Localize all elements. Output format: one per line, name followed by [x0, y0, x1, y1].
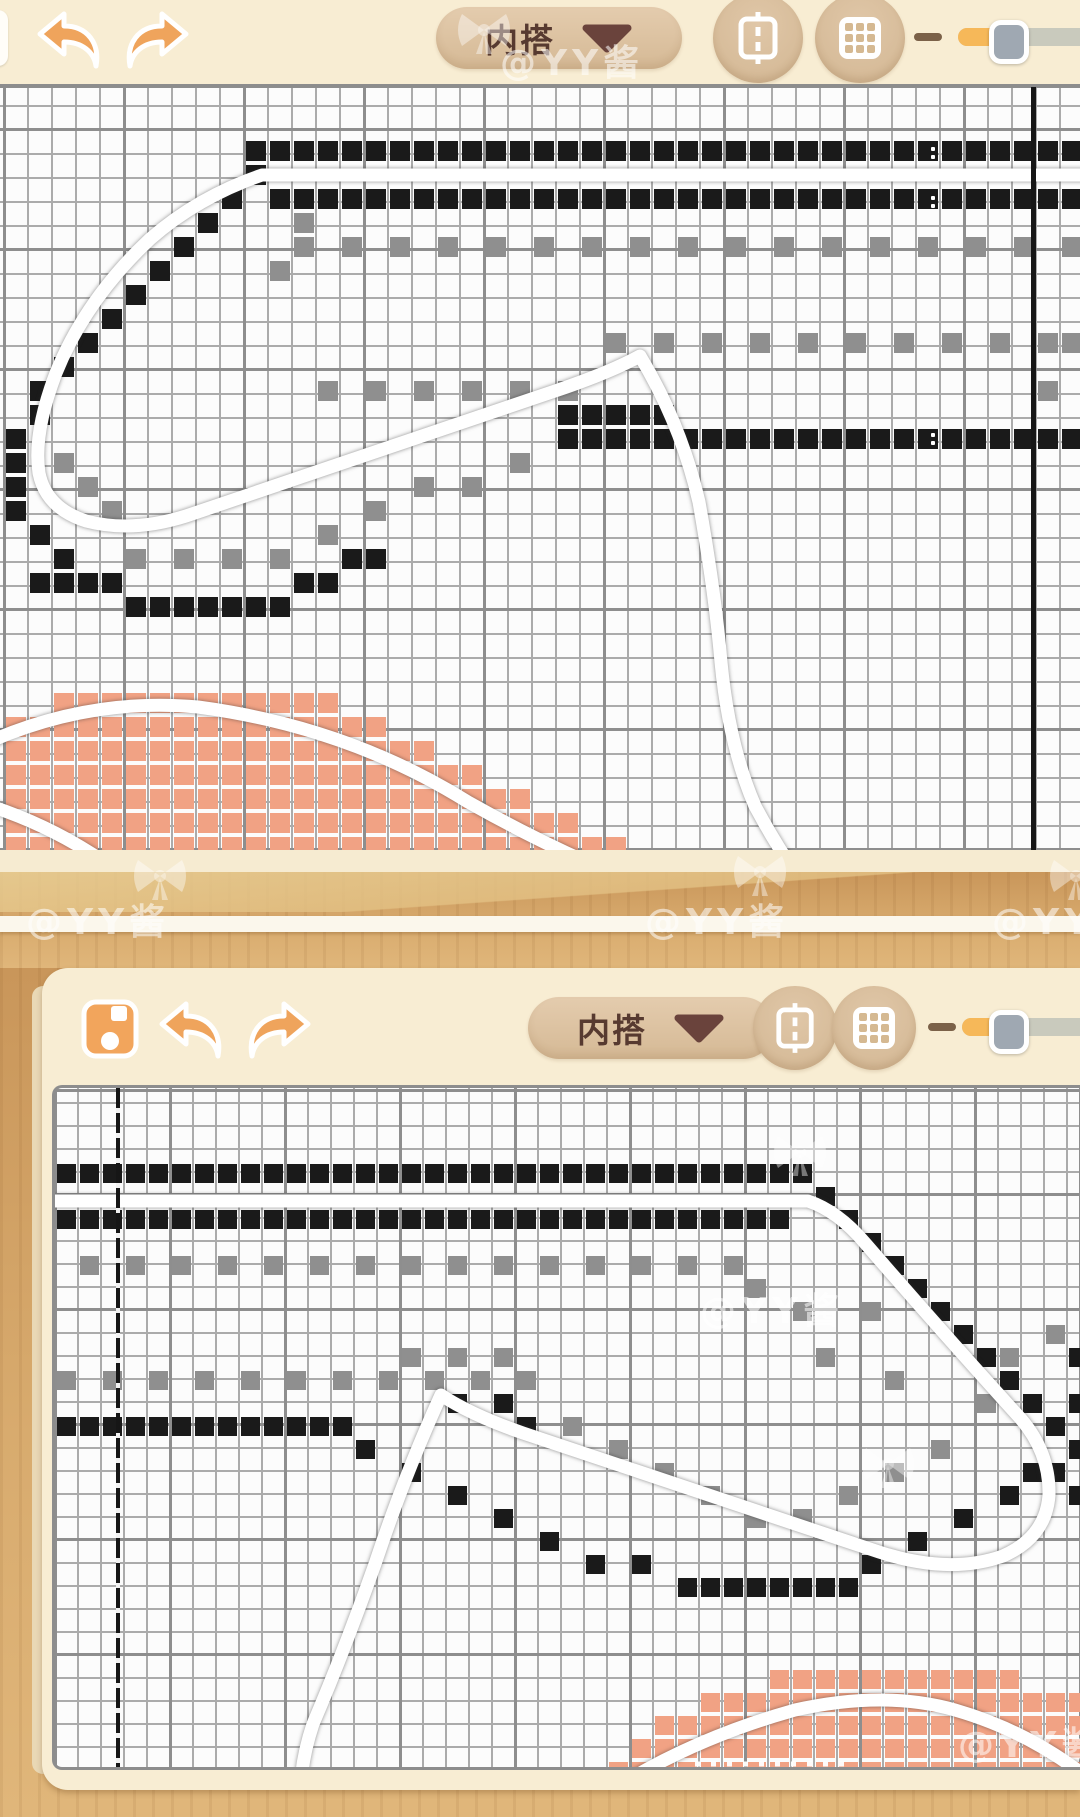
pattern-cell	[198, 717, 218, 737]
pattern-cell	[563, 1210, 582, 1229]
pattern-cell	[558, 141, 578, 161]
pattern-cell	[822, 141, 842, 161]
pattern-cell	[558, 429, 578, 449]
pattern-cell	[931, 1693, 950, 1712]
pattern-cell	[270, 261, 290, 281]
pattern-cell	[402, 1348, 421, 1367]
pattern-cell	[747, 1716, 766, 1735]
chevron-down-icon	[581, 23, 633, 53]
pattern-cell	[126, 741, 146, 761]
pattern-cell	[582, 429, 602, 449]
pattern-cell	[966, 237, 986, 257]
pattern-cell	[540, 1164, 559, 1183]
pattern-cell	[402, 1164, 421, 1183]
pattern-cell	[534, 813, 554, 833]
pattern-cell	[654, 333, 674, 353]
pattern-cell	[80, 1256, 99, 1275]
pattern-cell	[798, 189, 818, 209]
pattern-cell	[839, 1670, 858, 1689]
pattern-cell	[1062, 429, 1080, 449]
mirror-button[interactable]	[753, 986, 837, 1070]
pattern-cell	[846, 333, 866, 353]
pattern-cell	[726, 237, 746, 257]
pattern-cell	[150, 765, 170, 785]
pattern-cell	[150, 741, 170, 761]
pattern-cell	[793, 1739, 812, 1758]
pattern-cell	[198, 213, 218, 233]
pattern-cell	[540, 1210, 559, 1229]
pattern-cell	[222, 717, 242, 737]
save-icon	[80, 998, 140, 1060]
pattern-cell	[150, 789, 170, 809]
pattern-cell	[78, 693, 98, 713]
pattern-cell	[1046, 1739, 1065, 1758]
pattern-cell	[287, 1164, 306, 1183]
pattern-cell	[977, 1670, 996, 1689]
pattern-cell	[908, 1762, 927, 1770]
pattern-cell	[966, 141, 986, 161]
pattern-cell	[149, 1164, 168, 1183]
panel2-toolbar: 内搭	[42, 990, 1080, 1074]
pattern-cell	[701, 1164, 720, 1183]
pattern-cell	[990, 333, 1010, 353]
pattern-cell	[80, 1417, 99, 1436]
pattern-cell	[342, 741, 362, 761]
pattern-cell	[287, 1417, 306, 1436]
pattern-cell	[862, 1555, 881, 1574]
pattern-cell	[1046, 1693, 1065, 1712]
pattern-cell	[438, 813, 458, 833]
pattern-cell	[1069, 1440, 1080, 1459]
pattern-cell	[471, 1371, 490, 1390]
pattern-cell	[448, 1256, 467, 1275]
pattern-cell	[318, 741, 338, 761]
pattern-cell	[264, 1256, 283, 1275]
pattern-cell	[294, 765, 314, 785]
pattern-cell	[195, 1371, 214, 1390]
pattern-cell	[318, 693, 338, 713]
pattern-cell	[1062, 333, 1080, 353]
pattern-cell	[954, 1325, 973, 1344]
pattern-cell	[1000, 1348, 1019, 1367]
wood-divider-highlight	[0, 872, 1080, 912]
pattern-cell	[80, 1210, 99, 1229]
pattern-cell	[264, 1417, 283, 1436]
pattern-cell	[264, 1210, 283, 1229]
pattern-cell	[747, 1164, 766, 1183]
pattern-cell	[462, 765, 482, 785]
pattern-cell	[414, 381, 434, 401]
pattern-cell	[726, 189, 746, 209]
zoom-out-icon[interactable]	[928, 1023, 956, 1031]
pattern-cell	[30, 405, 50, 425]
grid-icon	[839, 17, 881, 59]
pattern-cell	[6, 717, 26, 737]
pattern-cell	[54, 741, 74, 761]
pattern-cell	[402, 1463, 421, 1482]
pattern-cell	[218, 1256, 237, 1275]
pattern-cell	[1046, 1716, 1065, 1735]
pattern-cell	[558, 813, 578, 833]
pattern-cell	[294, 237, 314, 257]
layer-selector[interactable]: 内搭	[436, 7, 682, 69]
pattern-cell	[149, 1417, 168, 1436]
pattern-cell	[366, 717, 386, 737]
pattern-cell	[310, 1164, 329, 1183]
pattern-cell	[954, 1716, 973, 1735]
pattern-cell	[102, 765, 122, 785]
pattern-cell	[366, 189, 386, 209]
pattern-cell	[462, 477, 482, 497]
pattern-cell	[379, 1371, 398, 1390]
pattern-cell	[630, 237, 650, 257]
pattern-cell	[270, 765, 290, 785]
undo-icon	[30, 8, 114, 72]
pattern-cell	[294, 141, 314, 161]
pattern-cell	[246, 765, 266, 785]
pattern-cell	[582, 141, 602, 161]
pattern-cell	[57, 1417, 76, 1436]
pattern-cell	[894, 333, 914, 353]
save-button[interactable]	[80, 998, 140, 1060]
pattern-cell	[438, 237, 458, 257]
pattern-cell	[816, 1578, 835, 1597]
pattern-cell	[310, 1210, 329, 1229]
pattern-cell	[747, 1509, 766, 1528]
pattern-cell	[885, 1693, 904, 1712]
pattern-cell	[246, 837, 266, 850]
pattern-cell	[150, 837, 170, 850]
pattern-cell	[990, 429, 1010, 449]
pattern-cell	[102, 813, 122, 833]
pattern-cell	[862, 1762, 881, 1770]
pattern-cell	[793, 1693, 812, 1712]
pattern-cell	[414, 141, 434, 161]
pattern-cell	[174, 693, 194, 713]
pattern-cell	[655, 1762, 674, 1770]
pattern-cell	[816, 1693, 835, 1712]
pattern-cell	[78, 741, 98, 761]
pattern-cell	[582, 405, 602, 425]
center-mark-dot	[931, 155, 935, 159]
pattern-cell	[510, 141, 530, 161]
pattern-cell	[126, 693, 146, 713]
pattern-cell	[222, 813, 242, 833]
pattern-cell	[942, 189, 962, 209]
grid-toggle-button[interactable]	[832, 986, 916, 1070]
mirror-button[interactable]	[713, 0, 803, 83]
pattern-cell	[908, 1670, 927, 1689]
pattern-cell	[150, 693, 170, 713]
pattern-cell	[793, 1670, 812, 1689]
pattern-cell	[102, 573, 122, 593]
pattern-cell	[1023, 1693, 1042, 1712]
zoom-slider[interactable]	[962, 1018, 1080, 1036]
pattern-cell	[30, 717, 50, 737]
pattern-cell	[908, 1279, 927, 1298]
pattern-cell	[954, 1670, 973, 1689]
pattern-cell	[448, 1348, 467, 1367]
pattern-cell	[342, 813, 362, 833]
pattern-cell	[942, 141, 962, 161]
pattern-cell	[990, 141, 1010, 161]
undo-icon	[152, 998, 236, 1062]
pattern-cell	[1069, 1739, 1080, 1758]
pattern-cell	[150, 261, 170, 281]
pattern-cell	[702, 333, 722, 353]
pattern-cell	[414, 837, 434, 850]
pattern-cell	[438, 789, 458, 809]
pattern-cell	[57, 1164, 76, 1183]
pattern-cell	[6, 789, 26, 809]
pattern-cell	[839, 1762, 858, 1770]
pattern-cell	[78, 765, 98, 785]
pattern-cell	[586, 1164, 605, 1183]
pattern-cell	[1038, 141, 1058, 161]
pattern-cell	[747, 1279, 766, 1298]
pattern-cell	[885, 1463, 904, 1482]
pattern-cell	[894, 141, 914, 161]
pattern-cell	[770, 1693, 789, 1712]
pattern-cell	[862, 1233, 881, 1252]
pattern-cell	[747, 1693, 766, 1712]
pattern-cell	[1069, 1716, 1080, 1735]
pattern-cell	[609, 1164, 628, 1183]
pattern-cell	[448, 1486, 467, 1505]
pattern-cell	[172, 1256, 191, 1275]
pattern-cell	[966, 429, 986, 449]
pattern-cell	[540, 1256, 559, 1275]
pattern-canvas-2[interactable]	[52, 1085, 1080, 1770]
pattern-cell	[102, 741, 122, 761]
pattern-cell	[606, 837, 626, 850]
pattern-cell	[942, 429, 962, 449]
pattern-cell	[510, 381, 530, 401]
pattern-cell	[218, 1417, 237, 1436]
pattern-cell	[486, 789, 506, 809]
pattern-cell	[931, 1739, 950, 1758]
pattern-cell	[977, 1762, 996, 1770]
pattern-cell	[1000, 1371, 1019, 1390]
pattern-cell	[870, 189, 890, 209]
pattern-cell	[54, 717, 74, 737]
pattern-cell	[678, 1578, 697, 1597]
redo-icon	[234, 998, 318, 1062]
pattern-cell	[6, 837, 26, 850]
redo-button[interactable]	[234, 998, 318, 1062]
undo-button[interactable]	[30, 8, 114, 72]
pattern-cell	[6, 477, 26, 497]
pattern-cell	[294, 717, 314, 737]
pattern-cell	[846, 429, 866, 449]
pattern-cell	[793, 1762, 812, 1770]
pattern-cell	[724, 1739, 743, 1758]
grid-icon	[853, 1007, 895, 1049]
pattern-cell	[724, 1256, 743, 1275]
pattern-cell	[390, 813, 410, 833]
pattern-cell	[54, 573, 74, 593]
pattern-cell	[1069, 1693, 1080, 1712]
pattern-cell	[390, 237, 410, 257]
pattern-cells-2	[55, 1088, 1080, 1767]
pattern-cell	[655, 1164, 674, 1183]
pattern-cell	[798, 333, 818, 353]
pattern-cell	[1000, 1486, 1019, 1505]
pattern-cell	[724, 1164, 743, 1183]
pattern-cell	[494, 1256, 513, 1275]
pattern-cell	[342, 237, 362, 257]
pattern-cell	[78, 477, 98, 497]
pattern-cell	[701, 1716, 720, 1735]
pattern-cell	[630, 429, 650, 449]
pattern-cell	[78, 333, 98, 353]
pattern-cell	[747, 1210, 766, 1229]
pattern-cell	[198, 813, 218, 833]
pattern-cell	[462, 141, 482, 161]
pattern-cell	[750, 333, 770, 353]
pattern-cell	[977, 1394, 996, 1413]
pattern-cell	[174, 813, 194, 833]
pattern-cell	[294, 741, 314, 761]
mirror-icon	[774, 1003, 816, 1053]
pattern-cell	[510, 453, 530, 473]
pattern-cell	[414, 741, 434, 761]
grid-toggle-button[interactable]	[815, 0, 905, 83]
pattern-cell	[726, 429, 746, 449]
pattern-cell	[126, 1256, 145, 1275]
pattern-cell	[977, 1716, 996, 1735]
pattern-cell	[198, 837, 218, 850]
pattern-cell	[701, 1486, 720, 1505]
pattern-cell	[222, 789, 242, 809]
pattern-cell	[78, 573, 98, 593]
pattern-cell	[908, 1739, 927, 1758]
pattern-cell	[270, 741, 290, 761]
undo-button[interactable]	[152, 998, 236, 1062]
zoom-out-icon[interactable]	[914, 33, 942, 41]
pattern-cell	[862, 1716, 881, 1735]
pattern-cell	[1046, 1325, 1065, 1344]
pattern-cell	[294, 789, 314, 809]
pattern-cell	[606, 333, 626, 353]
zoom-slider-thumb[interactable]	[989, 20, 1029, 64]
pattern-cell	[494, 1210, 513, 1229]
pattern-cell	[448, 1210, 467, 1229]
pattern-cell	[246, 141, 266, 161]
pattern-cell	[1062, 237, 1080, 257]
pattern-cell	[908, 1693, 927, 1712]
pattern-cell	[54, 837, 74, 850]
center-mark-dot	[931, 196, 935, 200]
pattern-cell	[172, 1417, 191, 1436]
pattern-cell	[172, 1164, 191, 1183]
zoom-slider-thumb[interactable]	[989, 1010, 1029, 1054]
pattern-cell	[246, 597, 266, 617]
pattern-cell	[701, 1739, 720, 1758]
zoom-slider[interactable]	[958, 28, 1080, 46]
pattern-cell	[839, 1486, 858, 1505]
pattern-cell	[606, 405, 626, 425]
pattern-cell	[908, 1532, 927, 1551]
pattern-cell	[1062, 141, 1080, 161]
pattern-cell	[839, 1693, 858, 1712]
pattern-cell	[54, 813, 74, 833]
pattern-cell	[870, 237, 890, 257]
pattern-cell	[425, 1164, 444, 1183]
pattern-cell	[6, 429, 26, 449]
pattern-cell	[222, 549, 242, 569]
pattern-cell	[462, 381, 482, 401]
pattern-canvas-1[interactable]	[0, 84, 1080, 850]
pattern-cell	[839, 1210, 858, 1229]
pattern-cell	[486, 141, 506, 161]
pattern-cell	[174, 789, 194, 809]
pattern-cell	[793, 1716, 812, 1735]
pattern-cell	[222, 693, 242, 713]
pattern-cell	[6, 741, 26, 761]
pattern-cell	[894, 429, 914, 449]
pattern-cell	[540, 1532, 559, 1551]
pattern-cell	[198, 693, 218, 713]
pattern-cell	[510, 189, 530, 209]
pattern-cell	[770, 1164, 789, 1183]
pattern-cell	[678, 189, 698, 209]
pattern-cell	[57, 1371, 76, 1390]
pattern-cell	[630, 405, 650, 425]
pattern-cell	[78, 789, 98, 809]
pattern-cell	[632, 1256, 651, 1275]
pattern-cell	[1000, 1716, 1019, 1735]
pattern-cell	[654, 405, 674, 425]
pattern-cell	[770, 1670, 789, 1689]
pattern-cell	[294, 813, 314, 833]
pattern-cell	[379, 1210, 398, 1229]
pattern-cell	[54, 765, 74, 785]
pattern-cell	[342, 837, 362, 850]
pattern-cell	[342, 549, 362, 569]
pattern-cell	[246, 741, 266, 761]
pattern-cell	[318, 765, 338, 785]
pattern-cell	[942, 333, 962, 353]
pattern-cell	[494, 1394, 513, 1413]
pattern-cell	[558, 837, 578, 850]
pattern-cell	[558, 189, 578, 209]
pattern-cell	[702, 141, 722, 161]
pattern-cell	[885, 1716, 904, 1735]
pattern-cell	[918, 189, 938, 209]
pattern-cell	[1069, 1348, 1080, 1367]
layer-selector[interactable]: 内搭	[528, 997, 774, 1059]
center-mark-dot	[931, 147, 935, 151]
pattern-cell	[793, 1164, 812, 1183]
redo-button[interactable]	[112, 8, 196, 72]
pattern-cell	[294, 213, 314, 233]
pattern-cell	[586, 1256, 605, 1275]
save-button-partial[interactable]	[0, 10, 8, 66]
pattern-cell	[977, 1348, 996, 1367]
pattern-cell	[270, 693, 290, 713]
pattern-cell	[6, 765, 26, 785]
pattern-cell	[793, 1509, 812, 1528]
pattern-cell	[862, 1302, 881, 1321]
pattern-cell	[582, 237, 602, 257]
pattern-cell	[102, 789, 122, 809]
pattern-cell	[222, 741, 242, 761]
pattern-cell	[632, 1555, 651, 1574]
pattern-cell	[366, 501, 386, 521]
pattern-cell	[126, 285, 146, 305]
pattern-cell	[414, 765, 434, 785]
